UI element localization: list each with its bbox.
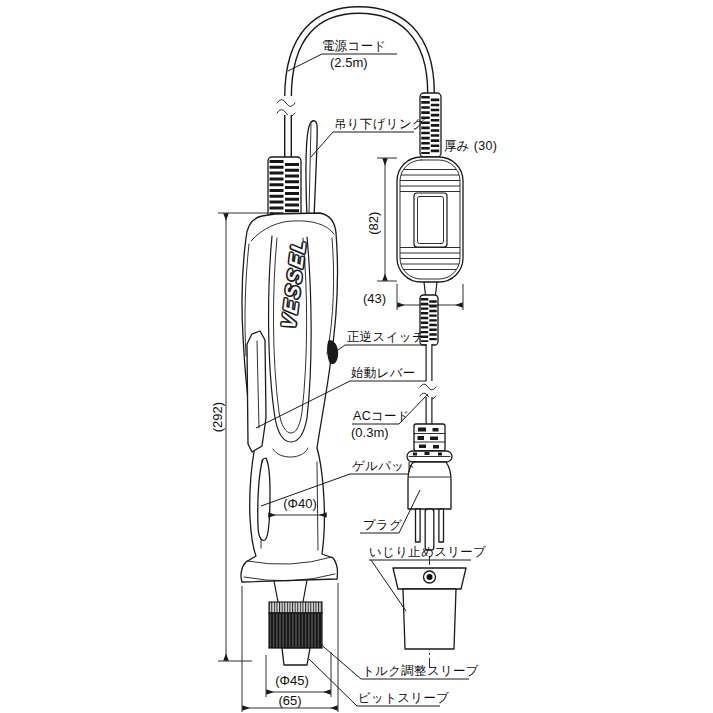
- label-hanging-ring: 吊り下げリング: [334, 118, 425, 132]
- label-ac-cord: ACコード: [353, 410, 410, 424]
- forward-reverse-switch: [327, 340, 338, 364]
- line-art: [0, 0, 713, 713]
- label-torque-adjust-sleeve: トルク調整スリーブ: [362, 665, 479, 679]
- tamper-proof-sleeve-detail: [393, 556, 466, 668]
- label-forward-reverse-switch: 正逆スイッチ: [347, 331, 425, 345]
- strain-relief-spring-tool: [268, 157, 301, 218]
- torque-adjustment-sleeve: [269, 602, 322, 613]
- dim-base-width: (65): [262, 694, 318, 708]
- dim-overall-length: (292): [211, 397, 225, 437]
- label-plug: プラグ: [363, 519, 402, 533]
- dim-grip-diameter: (Φ40): [272, 497, 328, 511]
- power-cord: [276, 10, 431, 159]
- start-lever: [247, 331, 266, 452]
- label-ac-cord-length: (0.3m): [351, 426, 389, 440]
- technical-drawing-electric-screwdriver: 電源コード (2.5m) 吊り下げリング 厚み (30) 正逆スイッチ 始動レバ…: [0, 0, 713, 713]
- dim-sleeve-diameter: (Φ45): [263, 674, 321, 688]
- bit-sleeve: [282, 648, 310, 665]
- dim-controller-height: (82): [367, 205, 381, 241]
- ac-cord: [418, 282, 440, 425]
- label-start-lever: 始動レバー: [351, 367, 416, 381]
- label-power-cord-length: (2.5m): [330, 56, 368, 70]
- label-power-cord: 電源コード: [322, 40, 387, 54]
- label-thickness: 厚み (30): [444, 140, 497, 154]
- label-bit-sleeve: ビットスリーブ: [358, 692, 449, 706]
- label-gel-pad: ゲルパッド: [352, 460, 417, 474]
- dim-controller-width: (43): [363, 292, 386, 306]
- hanging-ring: [306, 121, 317, 218]
- label-tamper-proof-sleeve: いじり止めスリーブ: [369, 546, 486, 560]
- power-plug: [407, 424, 452, 550]
